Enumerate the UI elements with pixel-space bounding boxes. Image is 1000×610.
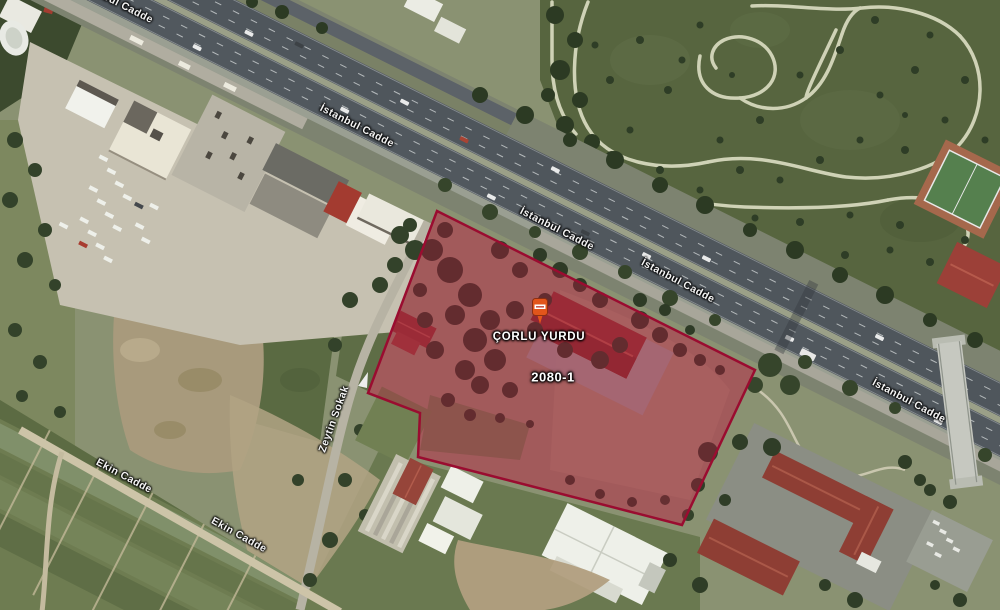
satellite-map[interactable]: İstanbul Cadde İstanbul Cadde İstanbul C… bbox=[0, 0, 1000, 610]
satellite-imagery bbox=[0, 0, 1000, 610]
parcel-lot-number-label: 2080-1 bbox=[531, 370, 574, 385]
corlu-yurdu-marker[interactable] bbox=[531, 297, 549, 329]
parcel-name-label[interactable]: ÇORLU YURDU bbox=[493, 331, 585, 343]
